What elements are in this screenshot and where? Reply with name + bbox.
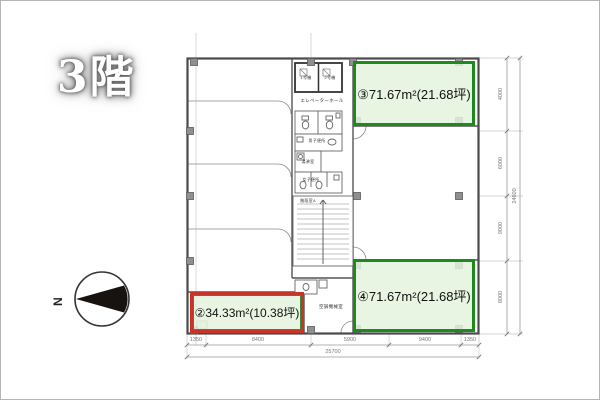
dim-bottom-2: 8400 <box>252 337 264 343</box>
unit-3-label: ③71.67m²(21.68坪) <box>357 84 471 103</box>
womens-toilet-label: 女子便所 <box>302 177 319 183</box>
dim-right-3: 9000 <box>498 222 504 234</box>
dim-bottom-4: 9400 <box>419 337 431 343</box>
dim-bottom-3: 5900 <box>344 337 356 343</box>
unit-2-area: ②34.33m²(10.38坪) <box>190 292 304 333</box>
dim-right-total: 24600 <box>512 188 518 203</box>
stairs <box>293 196 353 266</box>
unit-2-label: ②34.33m²(10.38坪) <box>195 304 300 321</box>
elevator-2-label: 2号機 <box>324 75 335 81</box>
machine-room-label: 空調機械室 <box>319 304 343 310</box>
dim-bottom-total: 25700 <box>325 349 340 355</box>
elevator-1-label: 1号機 <box>300 75 311 81</box>
dim-bottom-1: 1350 <box>190 337 202 343</box>
unit-4-area: ④71.67m²(21.68坪) <box>353 259 475 332</box>
dim-bottom-5: 1350 <box>464 337 476 343</box>
unit-4-label: ④71.67m²(21.68坪) <box>357 286 471 305</box>
compass-north-label: N <box>51 292 65 306</box>
floor-title: 3階 <box>57 56 136 100</box>
north-arrow-compass-icon <box>75 272 129 326</box>
stairwell-label: 階段室A <box>300 198 316 204</box>
dim-right-4: 8000 <box>498 291 504 303</box>
kitchenette-label: 湯沸室 <box>302 159 315 165</box>
floorplan-screenshot: 3階 N ③71.67m²(21.68坪) ④71.67m²(21.68坪) ②… <box>0 0 600 400</box>
dim-right-2: 6000 <box>498 157 504 169</box>
dim-right-1: 4000 <box>498 88 504 100</box>
elevator-hall-label: エレベーターホール <box>300 98 343 104</box>
mens-toilet-label: 男子便所 <box>308 138 325 144</box>
unit-3-area: ③71.67m²(21.68坪) <box>353 61 475 126</box>
